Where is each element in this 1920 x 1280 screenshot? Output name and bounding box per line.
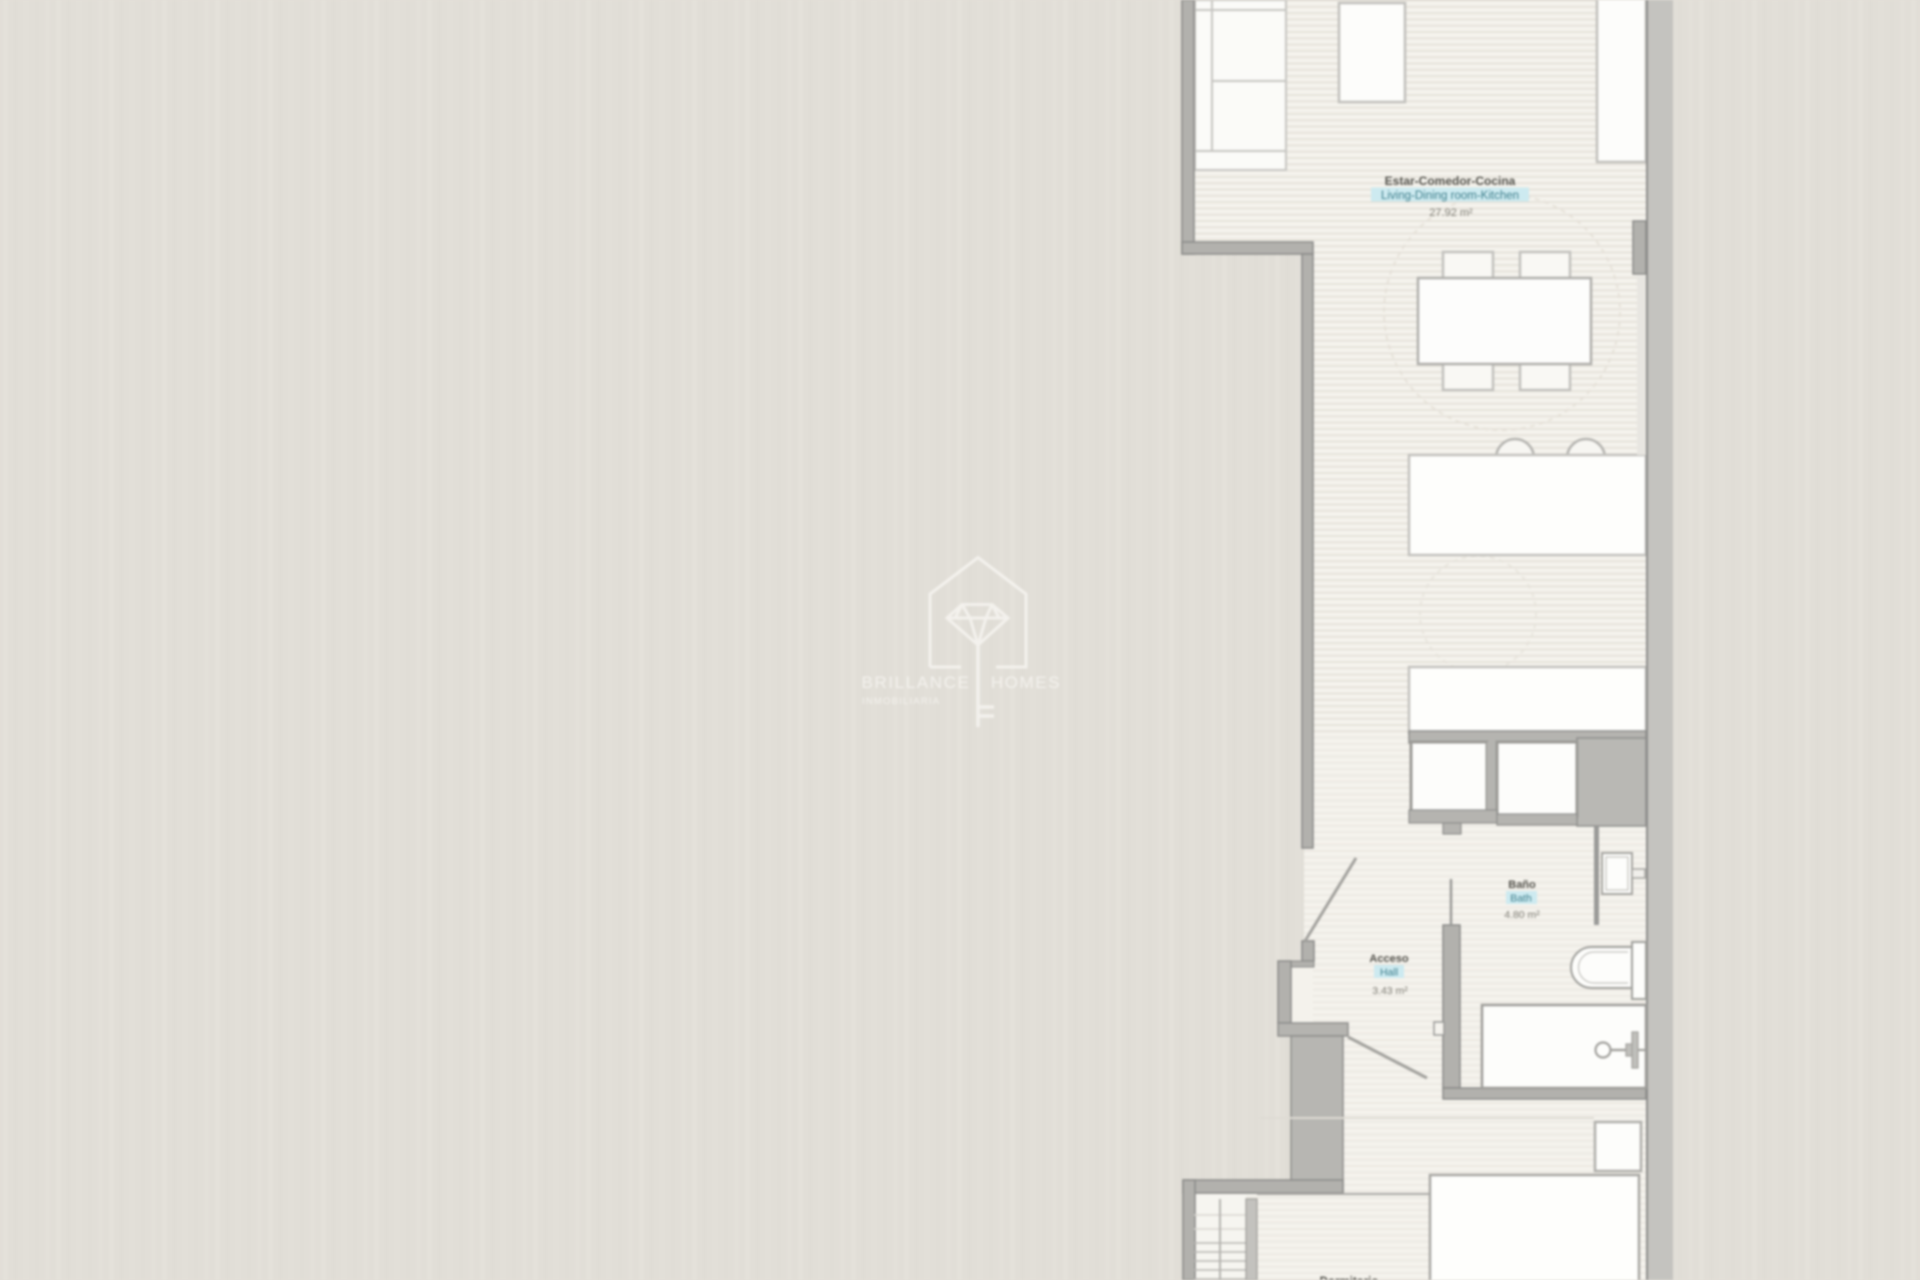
svg-text:Bath: Bath [1510, 893, 1532, 905]
svg-text:INMOBILIARIA: INMOBILIARIA [862, 696, 940, 707]
svg-text:Baño: Baño [1508, 879, 1536, 891]
svg-text:BRILLANCE: BRILLANCE [862, 673, 971, 692]
svg-text:4.80 m²: 4.80 m² [1504, 909, 1540, 921]
svg-text:Dormitorio: Dormitorio [1320, 1276, 1379, 1280]
svg-text:27.92 m²: 27.92 m² [1429, 207, 1473, 219]
svg-text:HOMES: HOMES [991, 673, 1061, 692]
svg-text:Acceso: Acceso [1369, 953, 1408, 965]
svg-text:Hall: Hall [1380, 967, 1398, 979]
svg-text:Living-Dining room-Kitchen: Living-Dining room-Kitchen [1381, 190, 1519, 202]
svg-text:Estar-Comedor-Cocina: Estar-Comedor-Cocina [1385, 174, 1516, 188]
svg-text:3.43 m²: 3.43 m² [1372, 985, 1408, 997]
